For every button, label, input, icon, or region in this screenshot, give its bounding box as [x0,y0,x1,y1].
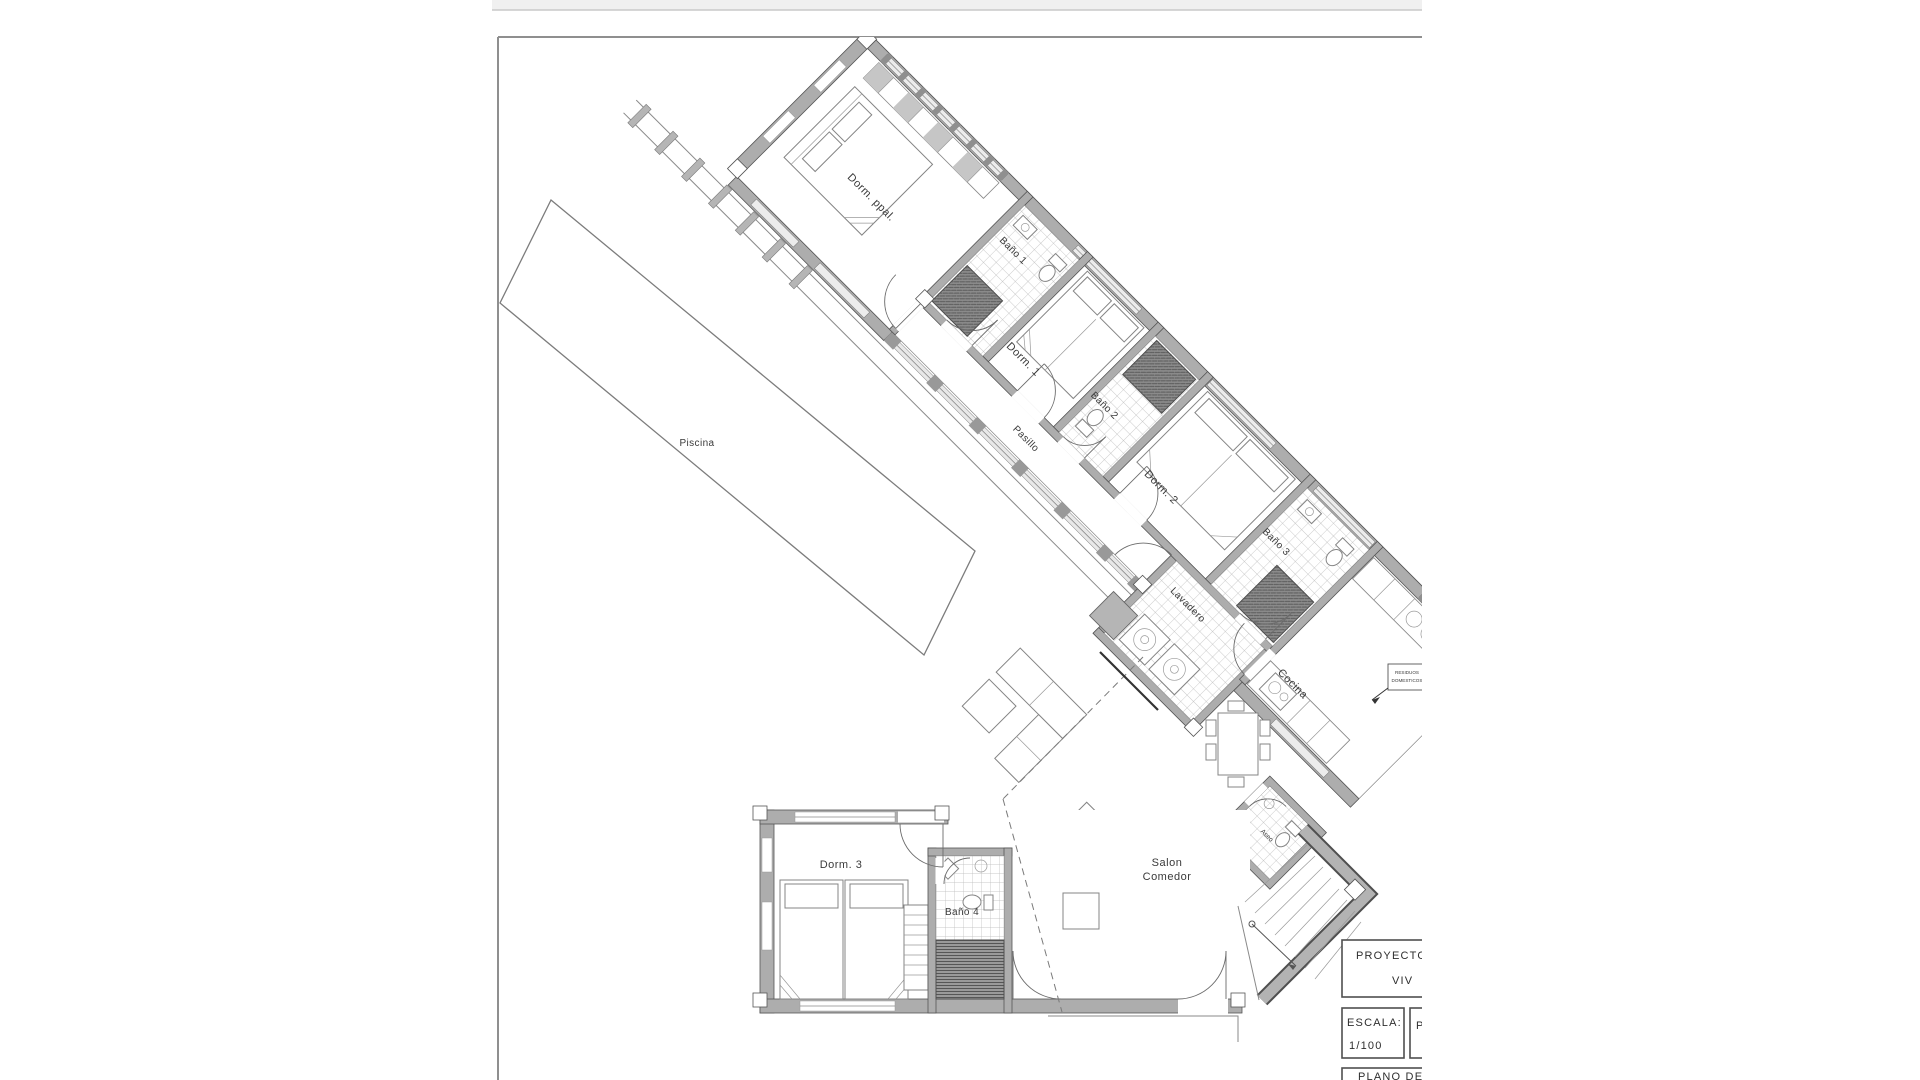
label-dorm3: Dorm. 3 [820,859,863,871]
dorm3-wardrobe [904,905,928,990]
title-escala-label: ESCALA: [1347,1017,1402,1029]
title-escala-value: 1/100 [1349,1040,1383,1052]
label-bano4: Baño 4 [945,907,979,918]
floorplan-canvas: Piscina [0,0,1920,1080]
bano4-room [928,848,1012,1013]
title-plano: PLANO DE [1358,1071,1423,1080]
label-salon-1: Salon [1152,857,1183,869]
title-vivienda: VIV [1392,975,1413,987]
lower-block [753,806,1250,1042]
salon-table [1063,893,1099,929]
label-piscina: Piscina [679,438,714,449]
label-residuos-2: DOMESTICOS [1392,678,1423,683]
top-band [492,0,1422,10]
label-salon-2: Comedor [1143,871,1192,883]
label-residuos-1: RESIDUOS [1395,670,1419,675]
